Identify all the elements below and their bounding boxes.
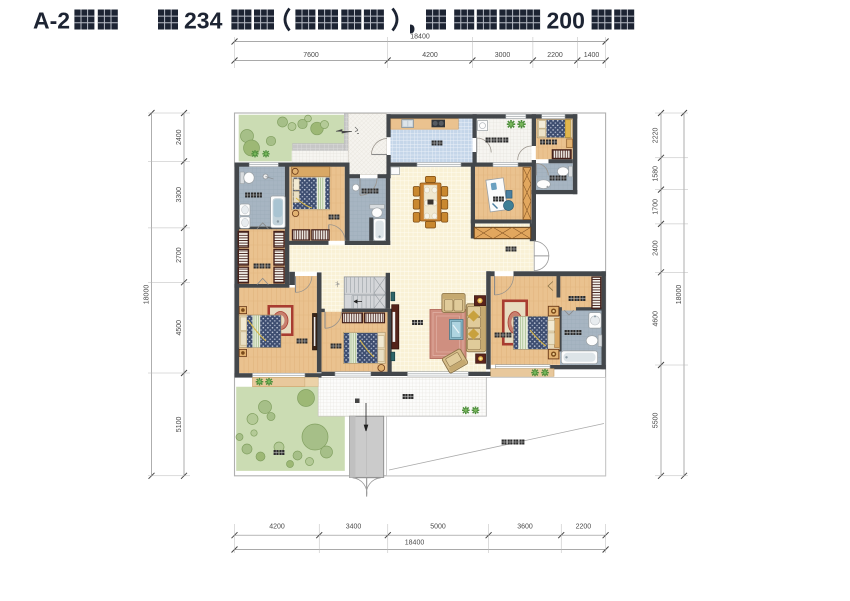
svg-text:2400: 2400 bbox=[176, 129, 183, 145]
svg-text:3600: 3600 bbox=[517, 524, 533, 531]
svg-text:5100: 5100 bbox=[176, 417, 183, 433]
svg-text:18400: 18400 bbox=[405, 540, 425, 547]
svg-text:200: 200 bbox=[547, 8, 585, 34]
svg-text:4200: 4200 bbox=[269, 524, 285, 531]
svg-text:2400: 2400 bbox=[653, 240, 660, 256]
svg-text:2220: 2220 bbox=[653, 128, 660, 144]
svg-text:7600: 7600 bbox=[303, 52, 319, 59]
svg-text:A-2: A-2 bbox=[33, 8, 70, 34]
svg-text:4200: 4200 bbox=[422, 52, 438, 59]
svg-text:1400: 1400 bbox=[584, 52, 600, 59]
svg-text:3400: 3400 bbox=[346, 524, 362, 531]
svg-text:18000: 18000 bbox=[676, 285, 683, 305]
svg-text:2200: 2200 bbox=[547, 52, 563, 59]
svg-text:3300: 3300 bbox=[176, 187, 183, 203]
svg-text:5000: 5000 bbox=[430, 524, 446, 531]
svg-text:234: 234 bbox=[184, 8, 223, 34]
svg-text:18000: 18000 bbox=[144, 285, 151, 305]
svg-text:4500: 4500 bbox=[176, 320, 183, 336]
svg-text:18400: 18400 bbox=[410, 34, 430, 41]
svg-text:2200: 2200 bbox=[576, 524, 592, 531]
svg-text:4600: 4600 bbox=[653, 311, 660, 327]
svg-text:1580: 1580 bbox=[653, 166, 660, 182]
svg-text:3000: 3000 bbox=[495, 52, 511, 59]
svg-text:1700: 1700 bbox=[653, 199, 660, 215]
svg-text:5500: 5500 bbox=[653, 413, 660, 429]
svg-text:2700: 2700 bbox=[176, 247, 183, 263]
